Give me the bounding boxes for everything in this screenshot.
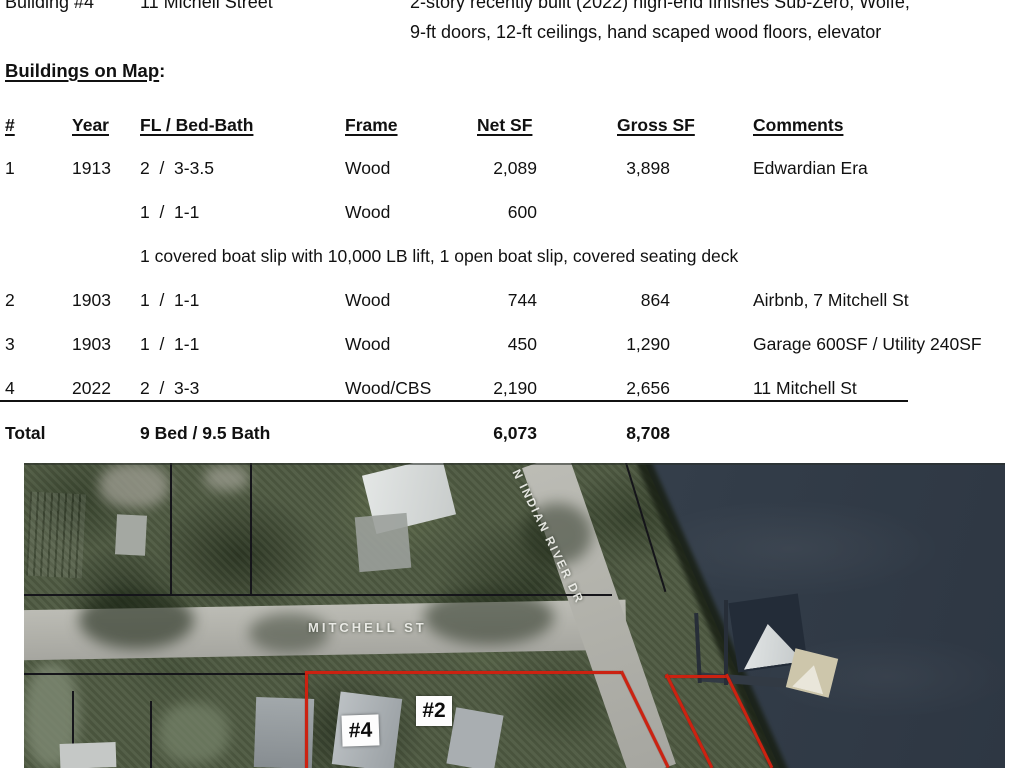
building4-desc-line2: 9-ft doors, 12-ft ceilings, hand scaped … [410,22,881,43]
header-year: Year [72,115,109,136]
parcel-line [250,463,252,595]
table-row: 2 1903 1 / 1-1 Wood 744 864 Airbnb, 7 Mi… [0,290,1024,314]
cell-frame: Wood [345,202,390,223]
table-total-row: Total 9 Bed / 9.5 Bath 6,073 8,708 [0,423,1024,447]
cell-fl-bed: 2 / 3-3 [140,378,199,399]
parcel-line [24,594,612,596]
building-4-marker: #4 [341,714,379,746]
parcel-line [150,701,152,768]
table-bottom-rule [0,400,908,402]
shed-roof [115,514,147,556]
pier [724,600,728,685]
cell-fl-bed: 1 / 1-1 [140,202,199,223]
header-num: # [5,115,15,136]
boat-shed-gable [792,661,829,694]
cell-comments: Airbnb, 7 Mitchell St [753,290,909,311]
header-net-sf: Net SF [477,115,532,136]
cell-frame: Wood [345,334,390,355]
table-row: 4 2022 2 / 3-3 Wood/CBS 2,190 2,656 11 M… [0,378,1024,402]
cell-gross-sf: 864 [578,290,670,311]
tree-shadow [79,591,194,649]
house-roof [60,742,117,768]
property-boundary-east [665,675,727,678]
cell-net-sf: 600 [430,202,537,223]
header-frame: Frame [345,115,398,136]
cell-net-sf: 2,190 [430,378,537,399]
cell-gross-sf: 3,898 [578,158,670,179]
cell-fl-bed: 2 / 3-3.5 [140,158,214,179]
cell-net-sf: 744 [430,290,537,311]
parcel-line [24,673,306,675]
cell-net-sf: 450 [430,334,537,355]
property-boundary-main [305,671,621,674]
building4-desc-line1: 2-story recently built (2022) high-end f… [410,0,910,13]
building4-label: Building #4 [5,0,94,13]
shed-roof [355,513,412,572]
aerial-map: MITCHELL ST N INDIAN RIVER DR #4 #2 [24,463,1005,768]
map-top-edge [24,463,1005,465]
cell-gross-sf: 1,290 [578,334,670,355]
cell-comments: Garage 600SF / Utility 240SF [753,334,982,355]
cell-frame: Wood/CBS [345,378,431,399]
cell-frame: Wood [345,158,390,179]
table-row: 3 1903 1 / 1-1 Wood 450 1,290 Garage 600… [0,334,1024,358]
clearing-patch [99,463,169,508]
section-heading-colon: : [159,60,165,81]
table-row: 1 1913 2 / 3-3.5 Wood 2,089 3,898 Edward… [0,158,1024,182]
section-heading: Buildings on Map: [5,60,165,82]
property-boundary-main [305,673,308,768]
cell-year: 1903 [72,334,111,355]
cell-num: 2 [5,290,15,311]
house-roof [26,492,86,579]
cell-year: 1903 [72,290,111,311]
section-heading-text: Buildings on Map [5,60,159,81]
cell-year: 2022 [72,378,111,399]
cell-gross-sf: 2,656 [578,378,670,399]
cell-comments: 11 Mitchell St [753,378,857,399]
grass-patch [159,703,229,763]
cell-frame: Wood [345,290,390,311]
cell-comments: Edwardian Era [753,158,868,179]
building4-address: 11 Michell Street [140,0,273,13]
table-header-row: # Year FL / Bed-Bath Frame Net SF Gross … [0,115,1024,139]
cell-fl-bed: 1 / 1-1 [140,334,199,355]
total-gross-sf: 8,708 [578,423,670,444]
cell-fl-bed: 1 / 1-1 [140,290,199,311]
total-net-sf: 6,073 [430,423,537,444]
tree-shadow [424,589,554,645]
header-fl-bed-bath: FL / Bed-Bath [140,115,253,136]
cell-num: 1 [5,158,15,179]
cell-year: 1913 [72,158,111,179]
building-2-marker: #2 [416,696,452,726]
clearing-patch [204,465,249,491]
cell-num: 4 [5,378,15,399]
header-gross-sf: Gross SF [617,115,695,136]
parcel-line [170,463,172,595]
document-page: Building #4 11 Michell Street 2-story re… [0,0,1024,768]
total-label: Total [5,423,46,444]
mitchell-st-label: MITCHELL ST [308,620,427,635]
house-roof [446,707,503,768]
table-note-row: 1 covered boat slip with 10,000 LB lift,… [0,246,1024,270]
header-comments: Comments [753,115,843,136]
boat-slip-note: 1 covered boat slip with 10,000 LB lift,… [140,246,738,267]
total-bed-bath: 9 Bed / 9.5 Bath [140,423,270,444]
cell-net-sf: 2,089 [430,158,537,179]
cell-num: 3 [5,334,15,355]
table-row: 1 / 1-1 Wood 600 [0,202,1024,226]
